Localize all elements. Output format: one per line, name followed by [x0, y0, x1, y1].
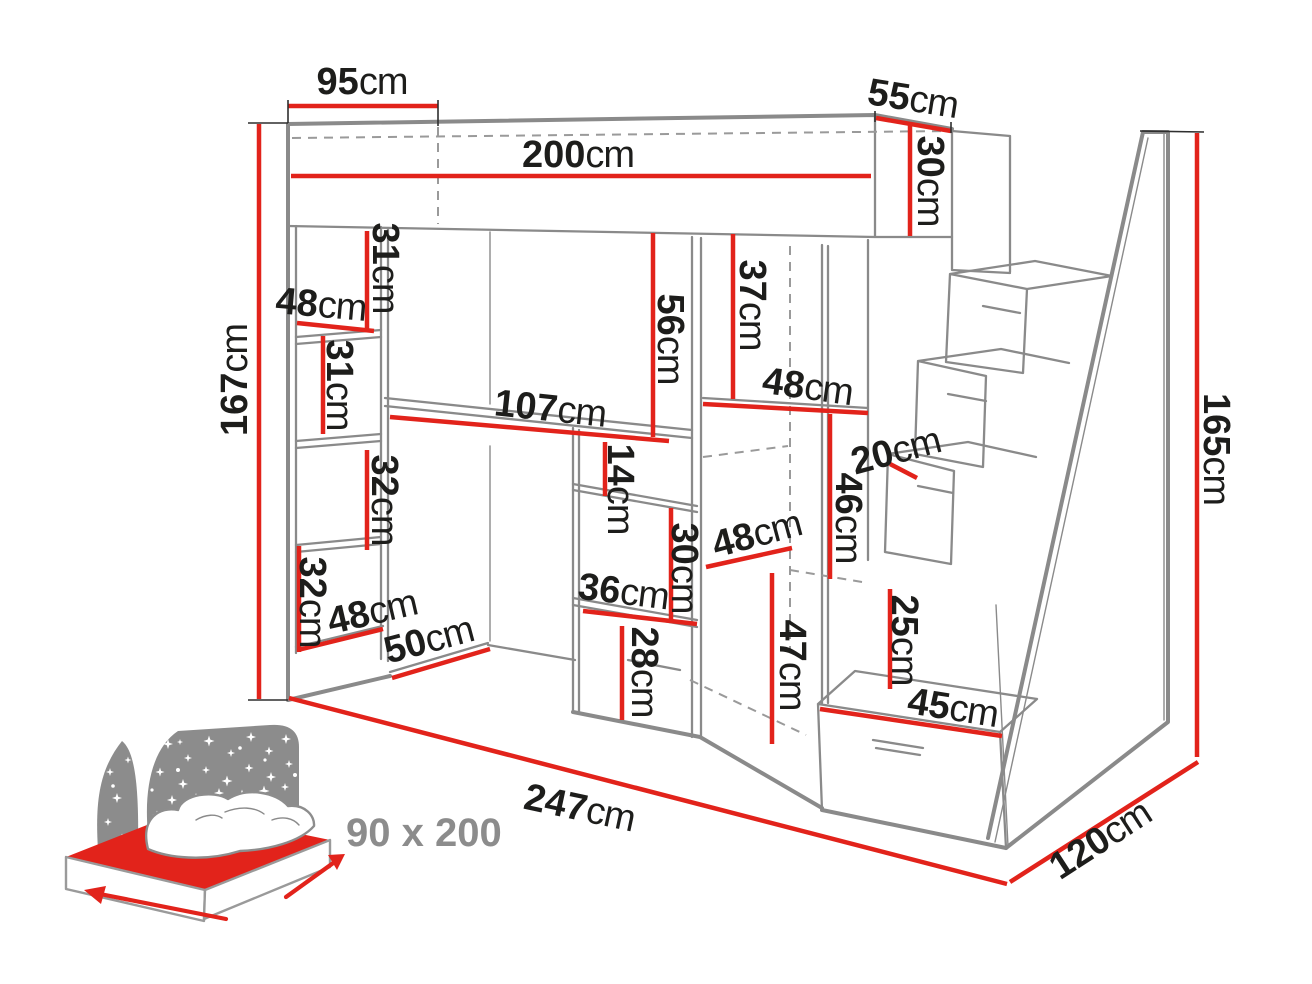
dimension-label-30-bed: 30cm — [909, 136, 951, 227]
dimension-label-167: 167cm — [214, 324, 256, 436]
dimension-label-25: 25cm — [883, 595, 925, 686]
dimension-label-30-cabinet: 30cm — [663, 523, 705, 614]
dimension-label-48-shelf-top: 48cm — [274, 280, 368, 330]
dimension-label-47: 47cm — [771, 620, 813, 711]
star-dot-icon — [238, 746, 242, 750]
dimension-label-46: 46cm — [827, 473, 869, 564]
star-dot-icon — [176, 768, 180, 772]
dimension-label-footprint: 90 x 200 — [346, 811, 502, 855]
furniture-dimension-diagram: 95cm200cm55cm30cm31cm48cm31cm167cm56cm37… — [0, 0, 1312, 984]
star-dot-icon — [263, 758, 266, 761]
dimension-label-14: 14cm — [599, 444, 641, 535]
dimension-label-37: 37cm — [731, 260, 773, 351]
dimension-label-200: 200cm — [522, 134, 634, 176]
dimension-label-32-upper: 32cm — [363, 455, 405, 546]
dimension-label-31-upper: 31cm — [364, 223, 406, 314]
star-dot-icon — [111, 784, 115, 788]
dimension-label-95: 95cm — [317, 61, 408, 103]
dimension-label-31-lower: 31cm — [318, 340, 360, 431]
star-dot-icon — [293, 773, 297, 777]
dimension-label-56: 56cm — [649, 294, 691, 385]
star-dot-icon — [150, 788, 153, 791]
dimension-label-165: 165cm — [1195, 393, 1237, 505]
dimension-label-28: 28cm — [623, 627, 665, 718]
